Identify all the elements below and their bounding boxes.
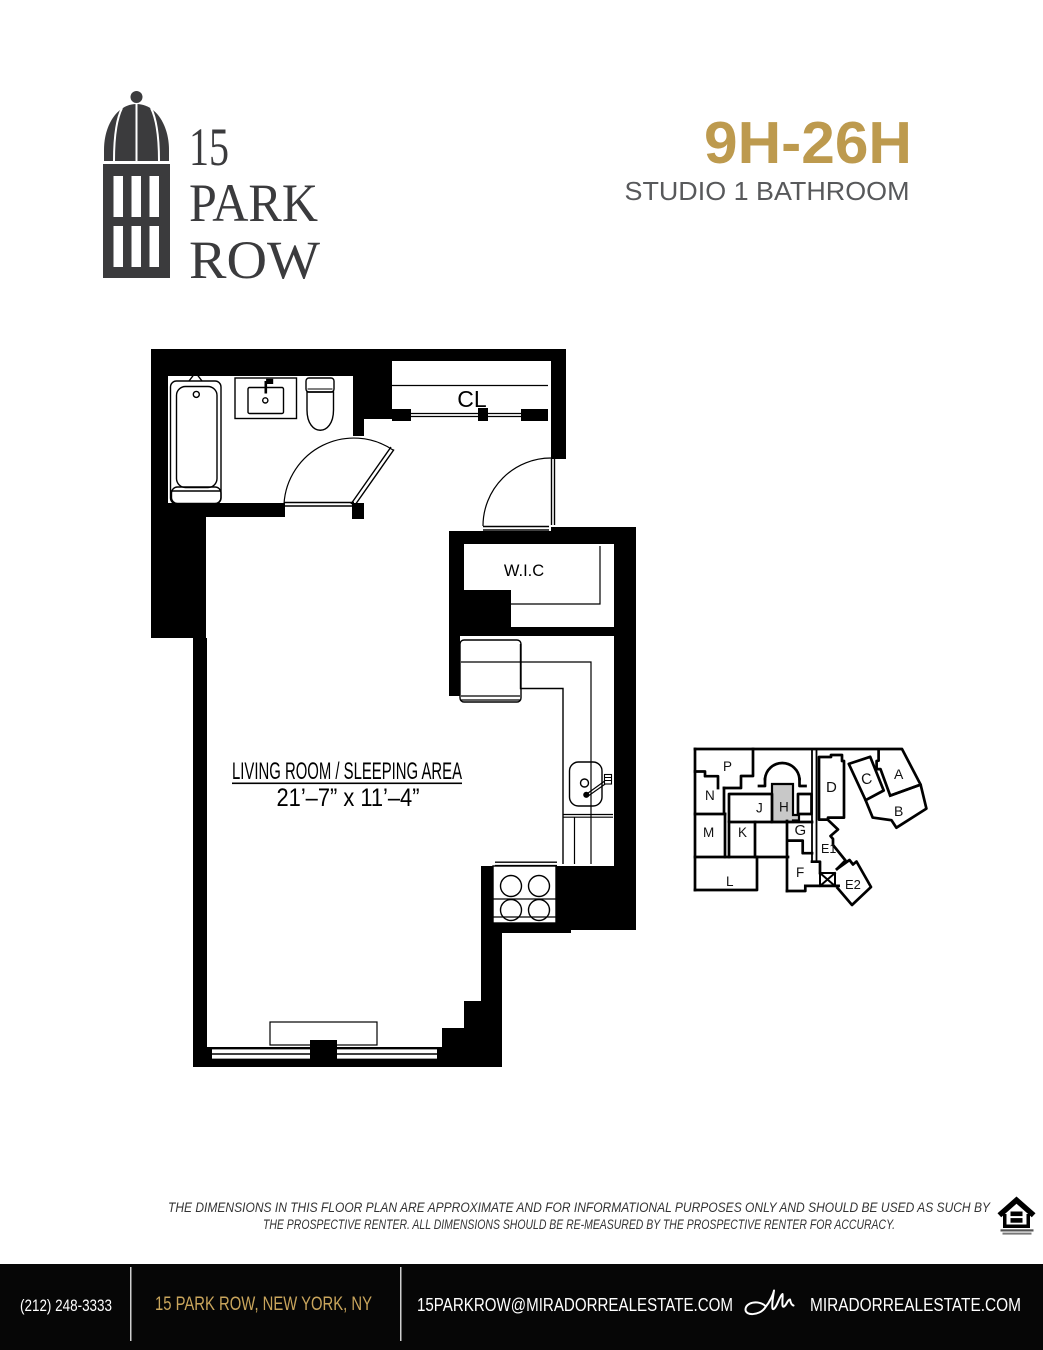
svg-text:THE PROSPECTIVE RENTER. ALL DI: THE PROSPECTIVE RENTER. ALL DIMENSIONS S… (263, 1217, 895, 1232)
svg-text:F: F (796, 865, 804, 880)
svg-text:PARK: PARK (189, 173, 318, 233)
svg-text:A: A (894, 766, 904, 782)
svg-text:W.I.C: W.I.C (504, 562, 544, 580)
svg-text:21’–7” x 11’–4”: 21’–7” x 11’–4” (277, 784, 420, 812)
svg-text:N: N (705, 788, 715, 803)
svg-text:E1: E1 (821, 842, 836, 856)
svg-text:L: L (726, 874, 734, 889)
svg-text:K: K (738, 825, 747, 840)
svg-text:D: D (826, 779, 837, 796)
svg-text:J: J (756, 801, 763, 816)
svg-text:ROW: ROW (189, 230, 320, 290)
svg-text:STUDIO 1 BATHROOM: STUDIO 1 BATHROOM (625, 176, 910, 206)
svg-text:E2: E2 (845, 877, 861, 892)
svg-text:B: B (894, 803, 903, 819)
svg-text:15: 15 (189, 117, 229, 177)
svg-text:MIRADORREALESTATE.COM: MIRADORREALESTATE.COM (810, 1294, 1021, 1315)
svg-text:H: H (779, 800, 789, 815)
svg-text:CL: CL (457, 386, 487, 412)
svg-text:9H-26H: 9H-26H (704, 110, 912, 176)
svg-text:M: M (703, 825, 714, 840)
svg-text:C: C (860, 770, 874, 789)
svg-text:LIVING ROOM / SLEEPING AREA: LIVING ROOM / SLEEPING AREA (232, 758, 462, 785)
svg-text:P: P (723, 759, 732, 774)
svg-text:(212) 248-3333: (212) 248-3333 (20, 1297, 112, 1315)
svg-text:15 PARK ROW, NEW YORK, NY: 15 PARK ROW, NEW YORK, NY (155, 1293, 372, 1315)
svg-text:G: G (795, 822, 807, 839)
svg-text:THE DIMENSIONS IN THIS FLOOR P: THE DIMENSIONS IN THIS FLOOR PLAN ARE AP… (168, 1200, 991, 1215)
svg-text:15PARKROW@MIRADORREALESTATE.CO: 15PARKROW@MIRADORREALESTATE.COM (417, 1294, 733, 1315)
